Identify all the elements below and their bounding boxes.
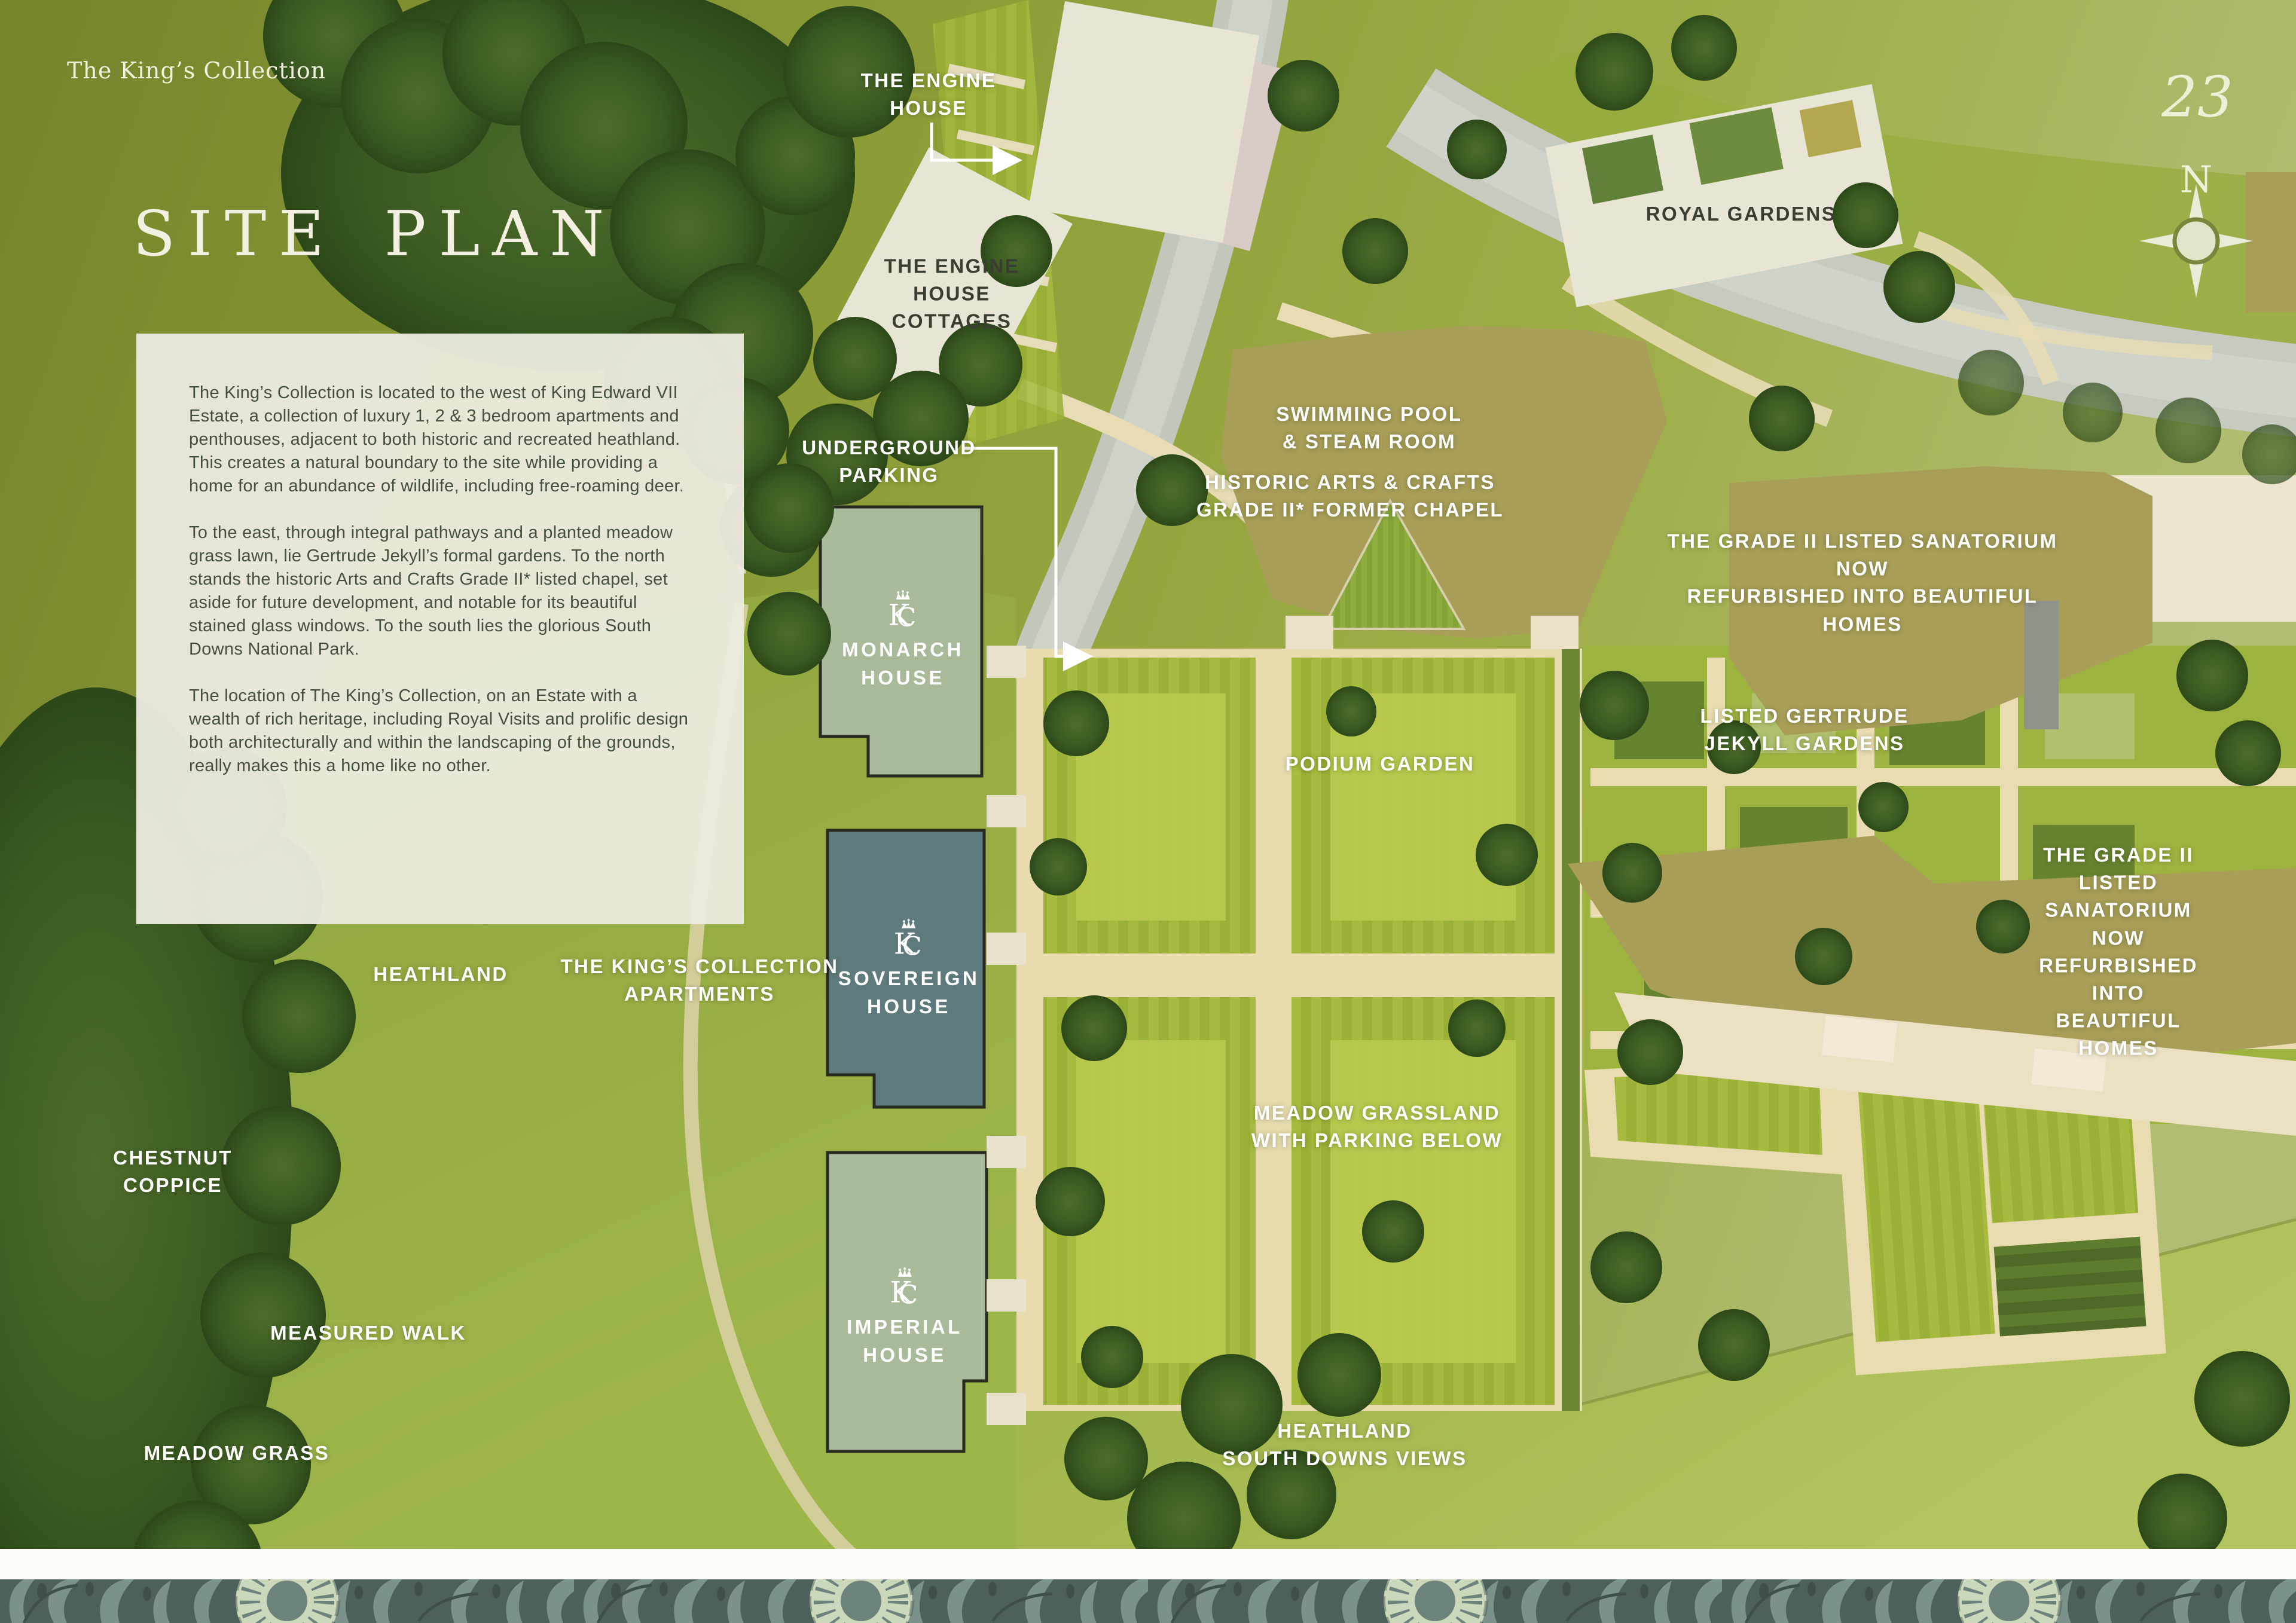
- kc-monogram-icon: C K: [890, 918, 927, 962]
- imperial-house-label: C K IMPERIAL HOUSE: [847, 1267, 963, 1370]
- label-sanatorium-north: THE GRADE II LISTED SANATORIUM NOW REFUR…: [1646, 528, 2080, 638]
- sovereign-house-name: SOVEREIGN HOUSE: [838, 965, 980, 1021]
- kc-monogram-icon: C K: [884, 589, 921, 634]
- engine-house-building: [1028, 1, 1259, 243]
- intro-text-card: The King’s Collection is located to the …: [136, 334, 744, 924]
- label-former-chapel: HISTORIC ARTS & CRAFTS GRADE II* FORMER …: [1196, 469, 1504, 524]
- compass-north-label: N: [2180, 158, 2212, 201]
- footer-pattern-band: [0, 1579, 2296, 1623]
- imperial-house-name: IMPERIAL HOUSE: [847, 1313, 963, 1370]
- label-jekyll-gardens: LISTED GERTRUDE JEKYLL GARDENS: [1700, 702, 1909, 757]
- monarch-house-label: C K MONARCH HOUSE: [842, 589, 964, 692]
- intro-paragraph-1: The King’s Collection is located to the …: [189, 381, 691, 498]
- kc-monogram-icon: C K: [886, 1267, 923, 1311]
- label-podium-garden: PODIUM GARDEN: [1286, 750, 1475, 778]
- label-swimming-pool: SWIMMING POOL & STEAM ROOM: [1276, 401, 1462, 456]
- label-underground-parking: UNDERGROUND PARKING: [802, 434, 976, 489]
- site-plan-page: The King’s Collection SITE PLAN 23 N The…: [0, 0, 2296, 1623]
- brand-logo: The King’s Collection: [67, 57, 326, 84]
- svg-text:K: K: [890, 1276, 912, 1309]
- label-meadow-grass: MEADOW GRASS: [144, 1439, 330, 1467]
- svg-text:K: K: [894, 927, 916, 961]
- intro-paragraph-2: To the east, through integral pathways a…: [189, 521, 691, 661]
- label-royal-gardens: ROYAL GARDENS: [1646, 200, 1837, 228]
- svg-text:K: K: [888, 598, 910, 632]
- monarch-house-name: MONARCH HOUSE: [842, 636, 964, 692]
- label-meadow-grassland: MEADOW GRASSLAND WITH PARKING BELOW: [1251, 1099, 1503, 1154]
- intro-paragraph-3: The location of The King’s Collection, o…: [189, 684, 691, 778]
- sovereign-house-label: C K SOVEREIGN HOUSE: [838, 918, 980, 1021]
- page-number: 23: [2161, 65, 2233, 130]
- page-title: SITE PLAN: [133, 197, 616, 270]
- label-heathland-south-downs: HEATHLAND SOUTH DOWNS VIEWS: [1222, 1417, 1467, 1472]
- label-engine-house-cottages: THE ENGINE HOUSE COTTAGES: [884, 253, 1020, 336]
- label-kings-collection-apartments: THE KING’S COLLECTION APARTMENTS: [561, 953, 839, 1008]
- label-heathland: HEATHLAND: [373, 961, 508, 988]
- label-sanatorium-east: THE GRADE II LISTED SANATORIUM NOW REFUR…: [2030, 841, 2208, 1062]
- footer-white-strip: [0, 1549, 2296, 1579]
- label-engine-house: THE ENGINE HOUSE: [861, 67, 997, 122]
- label-chestnut-coppice: CHESTNUT COPPICE: [113, 1144, 233, 1199]
- label-measured-walk: MEASURED WALK: [270, 1319, 466, 1347]
